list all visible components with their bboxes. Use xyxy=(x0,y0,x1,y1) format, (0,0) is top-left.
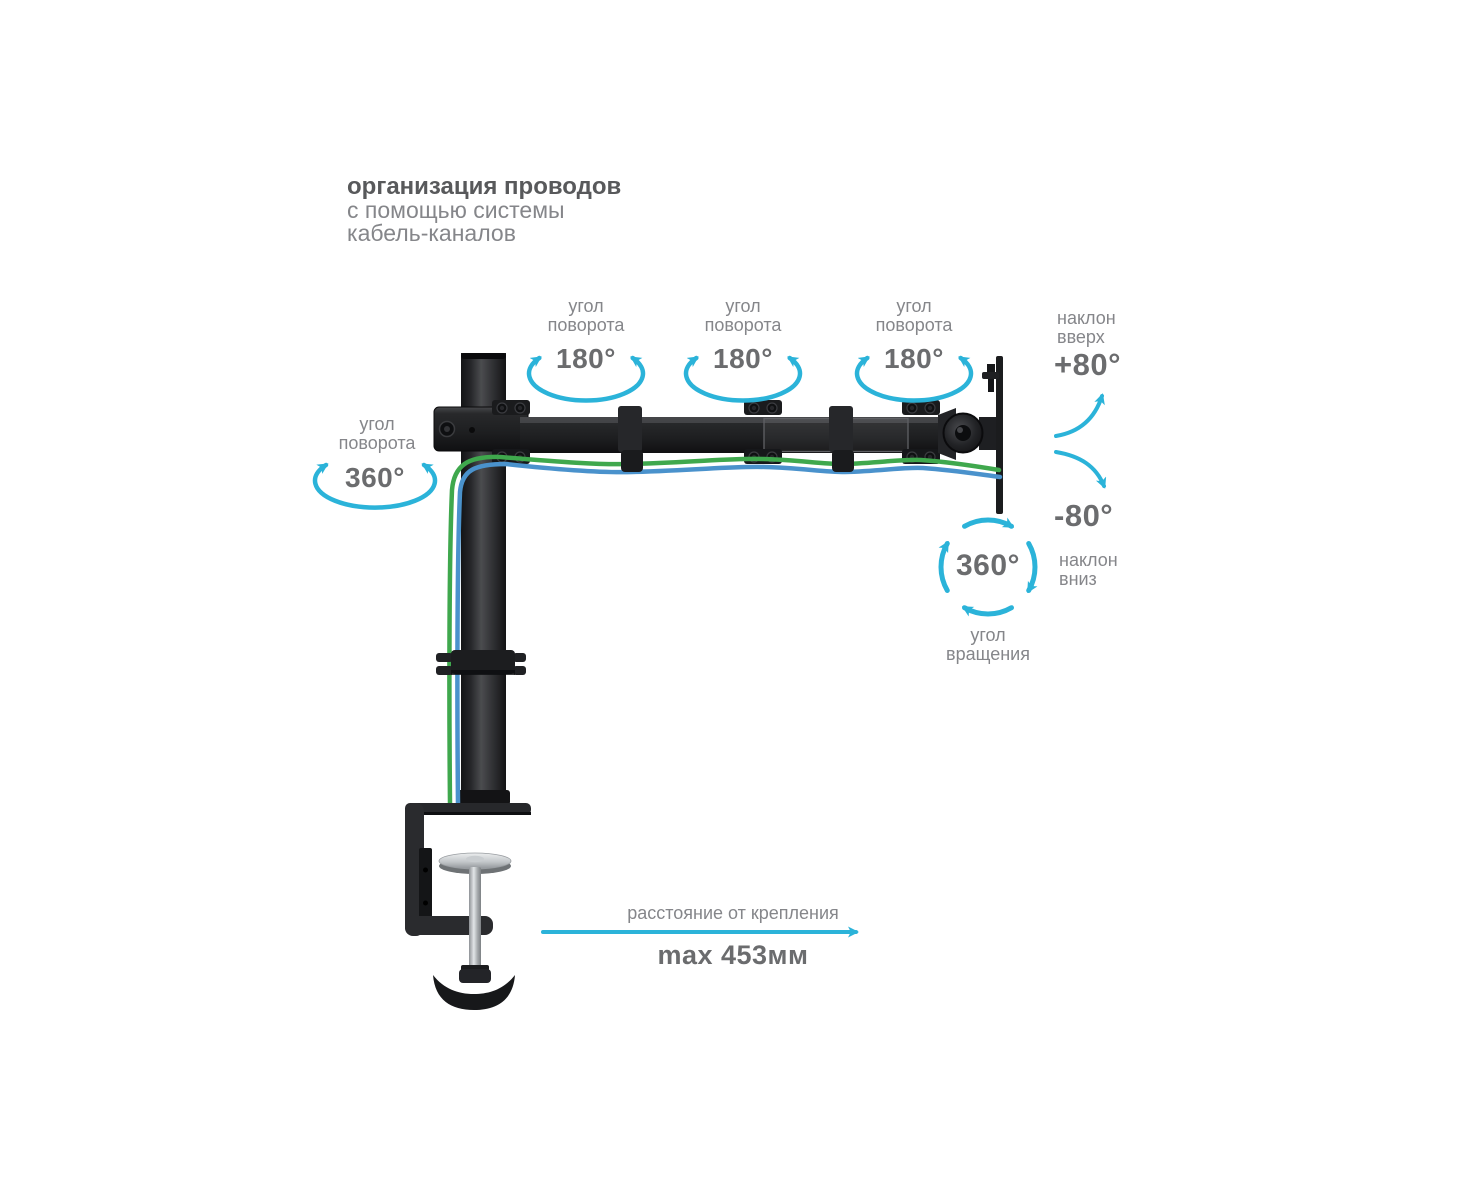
tilt-down-value: -80° xyxy=(1054,500,1174,532)
tilt-down-label: наклон вниз xyxy=(1059,551,1179,589)
pole-rotation-label: угол поворота xyxy=(307,415,447,453)
screen-rotation-value: 360° xyxy=(918,551,1058,581)
screen-rotation-label: угол вращения xyxy=(918,626,1058,664)
product-diagram: организация проводов с помощью системы к… xyxy=(0,0,1467,1200)
arm-rotation-2-value: 180° xyxy=(673,344,813,374)
pole-rotation-value: 360° xyxy=(305,463,445,493)
cable-clip xyxy=(618,406,643,472)
illustration-canvas xyxy=(0,0,1467,1200)
distance-label: расстояние от крепления xyxy=(573,903,893,924)
arm-rotation-1-label: угол поворота xyxy=(516,297,656,335)
title-line-2: с помощью системы xyxy=(347,199,621,222)
tilt-up-label: наклон вверх xyxy=(1057,309,1177,347)
arm-rotation-3-value: 180° xyxy=(844,344,984,374)
arm xyxy=(492,400,940,464)
distance-value: max 453мм xyxy=(613,941,853,969)
tilt-down-arrow-icon xyxy=(1056,452,1104,486)
arm-rotation-3-label: угол поворота xyxy=(844,297,984,335)
tilt-up-arrow-icon xyxy=(1056,396,1102,436)
title-line-1: организация проводов xyxy=(347,174,621,199)
cable-green xyxy=(449,457,999,803)
desk-clamp xyxy=(405,803,531,1010)
page-title: организация проводов с помощью системы к… xyxy=(347,174,621,245)
title-line-3: кабель-каналов xyxy=(347,222,621,245)
arm-rotation-1-value: 180° xyxy=(516,344,656,374)
arm-rotation-2-label: угол поворота xyxy=(673,297,813,335)
vesa-plate xyxy=(996,356,1003,514)
tilt-up-value: +80° xyxy=(1054,349,1174,381)
cable-clip xyxy=(829,406,854,472)
clamp-screw-rod xyxy=(469,867,481,970)
